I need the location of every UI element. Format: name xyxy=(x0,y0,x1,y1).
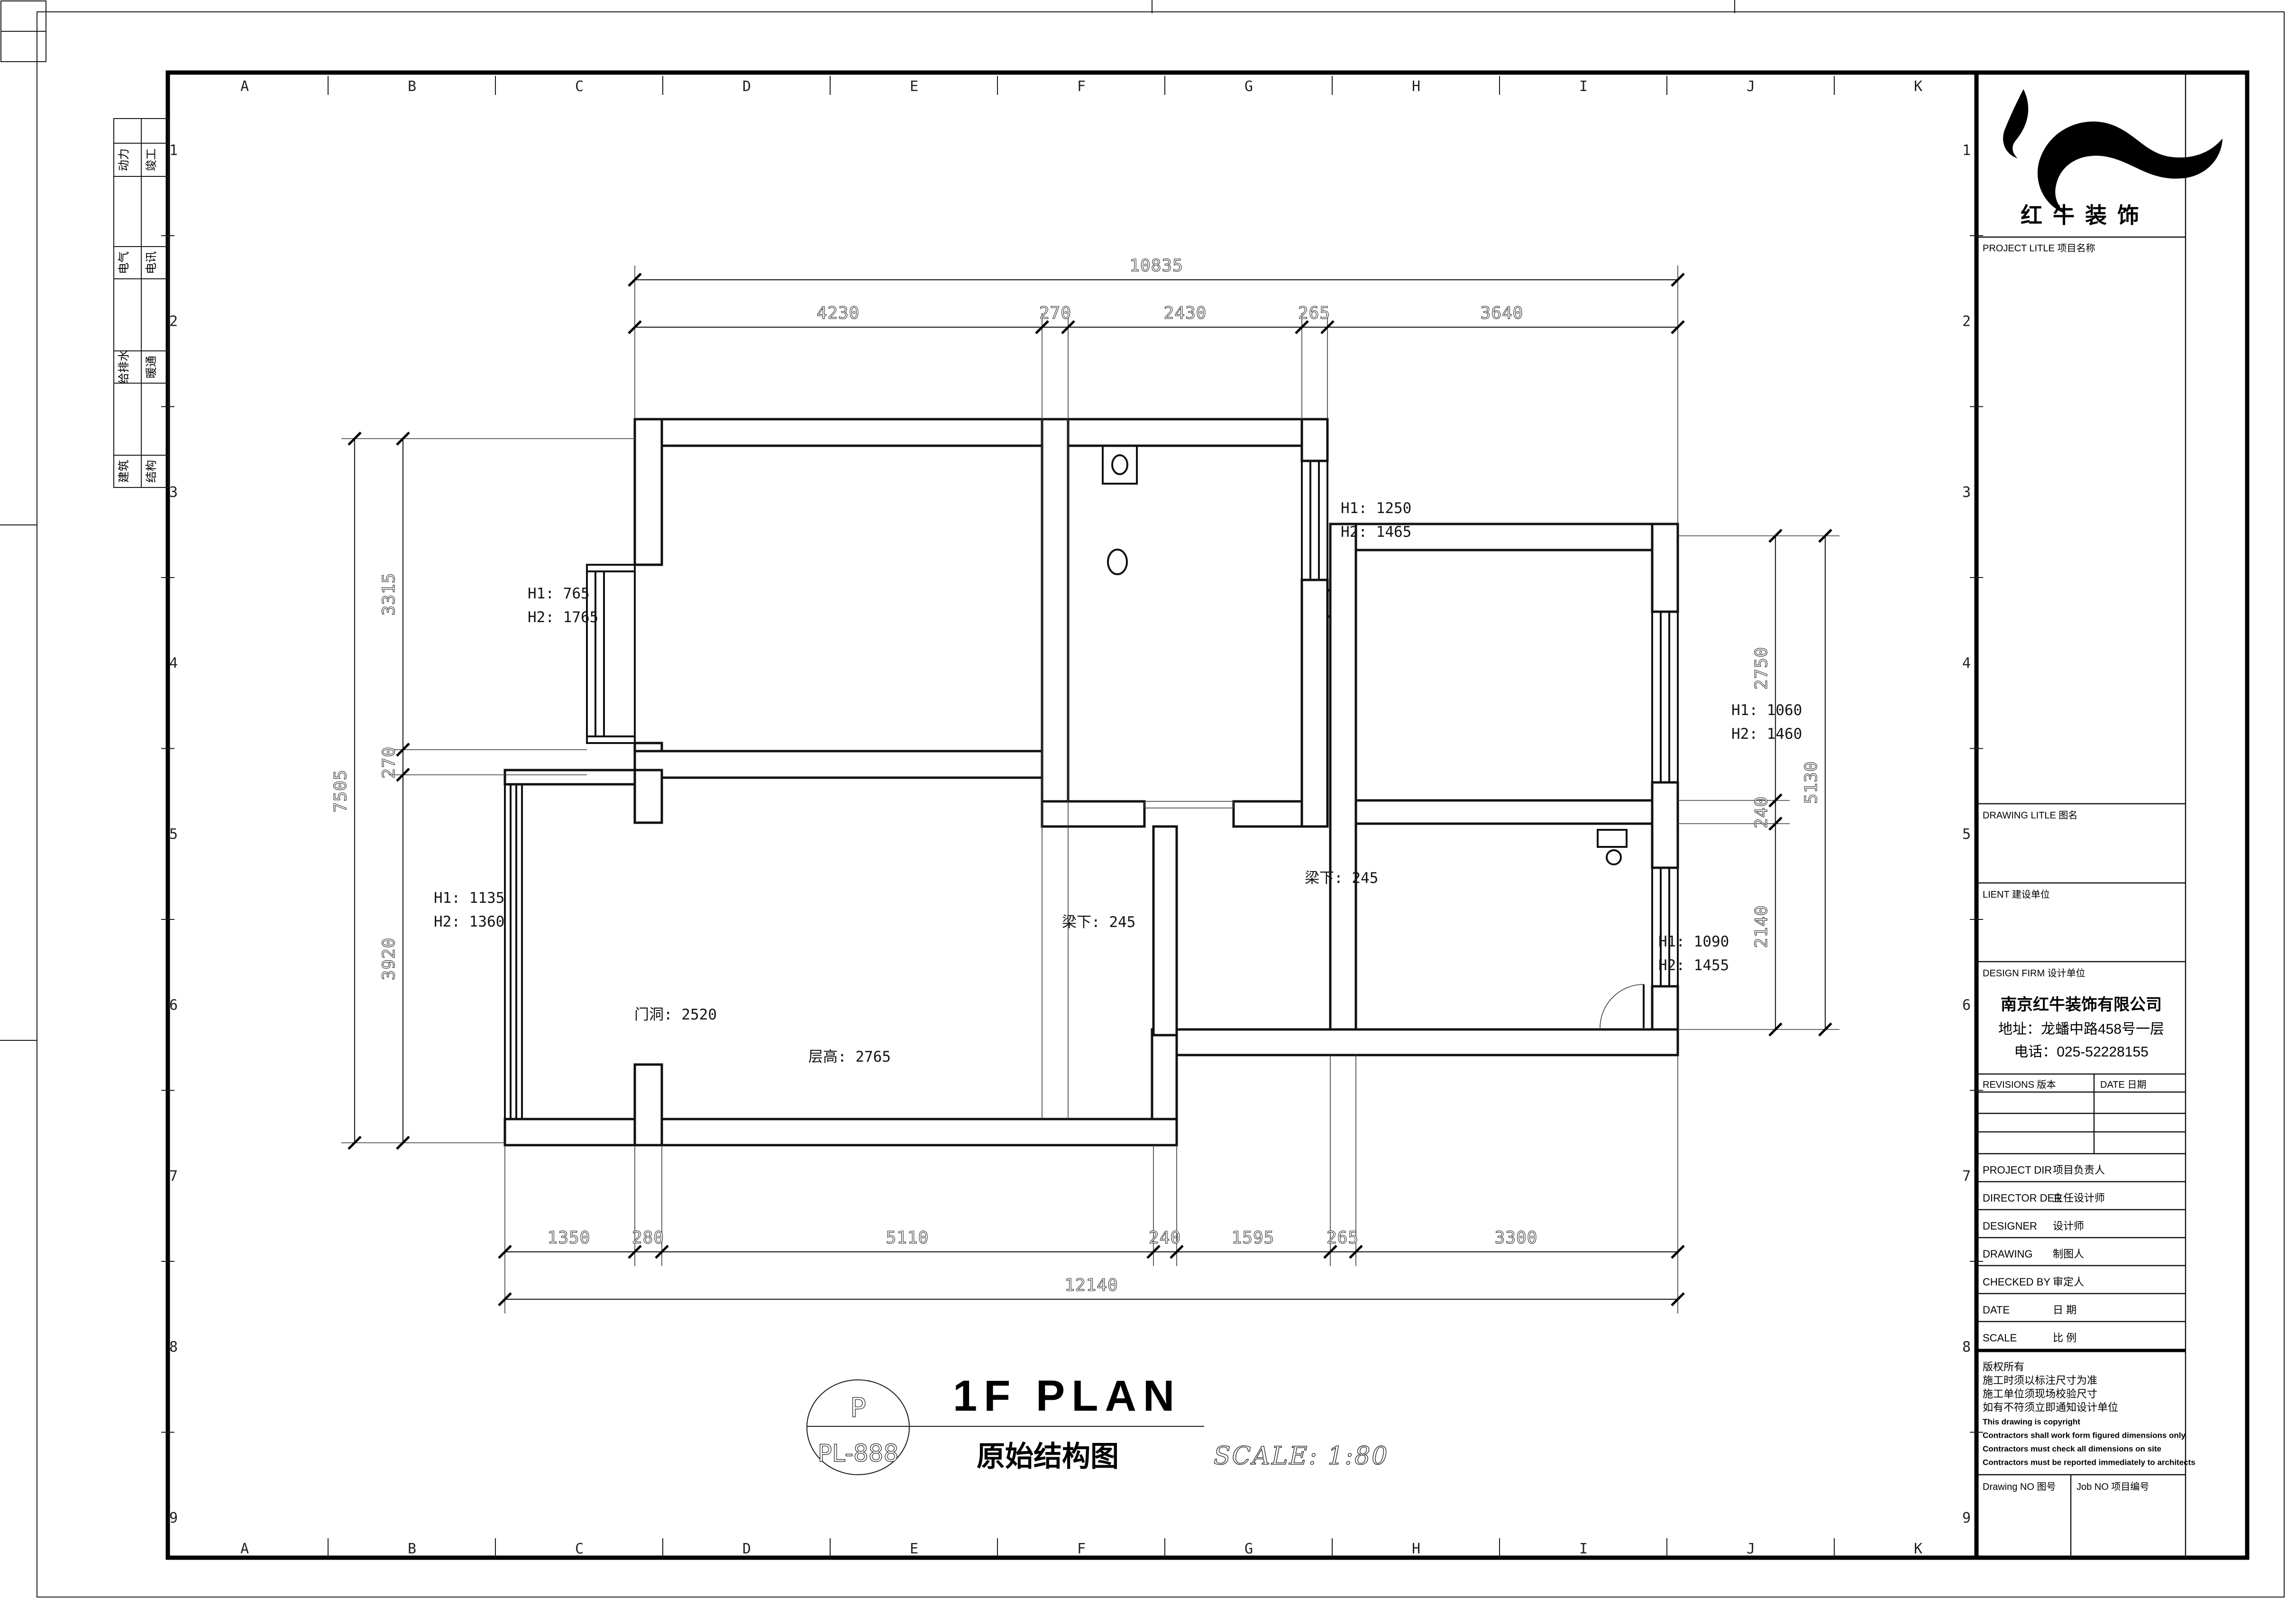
wall-balcony-top xyxy=(505,770,635,784)
grid-letter-bottom: A xyxy=(240,1541,249,1557)
date-col-label: DATE 日期 xyxy=(2100,1080,2146,1090)
tb-row-en: PROJECT DIR xyxy=(1983,1164,2052,1176)
tb-row-en: DESIGNER xyxy=(1983,1220,2037,1232)
tb-row-en: DIRECTOR DER xyxy=(1983,1192,2062,1204)
dim-value: 5110 xyxy=(886,1228,929,1248)
dim-value: 270 xyxy=(1039,303,1071,323)
sidebar-label-left: 给排水 xyxy=(118,350,130,384)
tb-row-cn: 主任设计师 xyxy=(2053,1192,2105,1204)
grid-letter-bottom: I xyxy=(1579,1541,1588,1557)
outer-border xyxy=(37,12,2284,1597)
wall-bed1-left-upper xyxy=(635,419,662,565)
tb-row-en: DATE xyxy=(1983,1304,2010,1316)
tb-row-cn: 比 例 xyxy=(2053,1332,2076,1344)
grid-number-left: 4 xyxy=(169,655,178,672)
dim-value: 280 xyxy=(632,1228,664,1248)
grid-letter-bottom: D xyxy=(742,1541,751,1557)
wall-bed1-bath-divider xyxy=(1042,419,1068,826)
plan-subtitle: 原始结构图 xyxy=(977,1441,1119,1472)
kitchen-fixture-box xyxy=(1598,830,1627,847)
dim-value: 5130 xyxy=(1802,761,1821,804)
tb-row-en: SCALE xyxy=(1983,1332,2017,1344)
dim-value: 3300 xyxy=(1495,1228,1538,1248)
grid-letter-top: G xyxy=(1244,78,1253,95)
dim-value: 3920 xyxy=(379,937,399,981)
plan-note: 层高: 2765 xyxy=(808,1048,891,1065)
copyright-line: Contractors must be reported immediately… xyxy=(1983,1458,2195,1467)
dim-value: 265 xyxy=(1326,1228,1359,1248)
bath-window xyxy=(1302,461,1327,580)
grid-number-right: 3 xyxy=(1962,484,1971,501)
dim-value: 10835 xyxy=(1129,256,1183,275)
kitchen-drain xyxy=(1607,850,1621,864)
wall-bed2-kitchen-divider xyxy=(1356,800,1652,824)
grid-number-left: 1 xyxy=(169,142,178,159)
grid-letter-top: B xyxy=(408,78,416,95)
grid-number-left: 6 xyxy=(169,997,178,1014)
sidebar-label-left: 电气 xyxy=(118,251,130,274)
grid-number-left: 3 xyxy=(169,484,178,501)
dim-value: 12140 xyxy=(1064,1276,1118,1295)
wall-bed1-bottom xyxy=(635,751,1068,778)
window-label-h2: H2: 1465 xyxy=(1341,523,1411,541)
sidebar-label-left: 建筑 xyxy=(118,460,130,483)
dim-value: 1350 xyxy=(548,1228,591,1248)
kitchen-door-swing xyxy=(1600,984,1644,1028)
bath-door-threshold xyxy=(1144,801,1234,808)
brand-name: 红牛装饰 xyxy=(2021,203,2150,228)
grid-letter-bottom: B xyxy=(408,1541,416,1557)
tb-row-cn: 项目负责人 xyxy=(2053,1164,2105,1176)
wall-rightblock-left xyxy=(1330,524,1356,1055)
discipline-sidebar: 动力竣工电气电讯给排水暖通建筑结构 xyxy=(114,119,168,487)
wall-rightblock-right-upper xyxy=(1652,524,1678,612)
tb-row-cn: 设计师 xyxy=(2053,1220,2084,1232)
grid-number-left: 8 xyxy=(169,1339,178,1356)
grid-letter-top: J xyxy=(1747,78,1755,95)
plan-scale: SCALE: 1:80 xyxy=(1214,1442,1389,1470)
grid-letter-bottom: K xyxy=(1914,1541,1922,1557)
balcony-window xyxy=(505,784,522,1119)
copyright-block: 版权所有施工时须以标注尺寸为准施工单位须现场校验尺寸如有不符须立即通知设计单位T… xyxy=(1983,1361,2195,1467)
wall-living-bottom xyxy=(505,1119,1177,1145)
grid-letter-top: F xyxy=(1077,78,1086,95)
wall-rightblock-right-mid xyxy=(1652,782,1678,868)
dim-value: 240 xyxy=(1149,1228,1181,1248)
dim-value: 2430 xyxy=(1164,303,1207,323)
fold-mark-box-1 xyxy=(1,1,46,31)
sidebar-label-right: 电讯 xyxy=(145,251,158,274)
window-label-h1: H1: 1250 xyxy=(1341,500,1411,517)
grid-number-right: 7 xyxy=(1962,1168,1971,1185)
grid-letter-bottom: H xyxy=(1412,1541,1420,1557)
main-frame xyxy=(168,73,2247,1558)
copyright-line: 施工时须以标注尺寸为准 xyxy=(1983,1375,2097,1387)
wall-living-right xyxy=(1153,826,1177,1035)
company-phone: 电话：025-52228155 xyxy=(2014,1044,2149,1060)
copyright-line: Contractors shall work form figured dime… xyxy=(1983,1431,2186,1440)
grid-letter-bottom: C xyxy=(575,1541,584,1557)
plan-title: 1F PLAN xyxy=(953,1372,1181,1420)
dim-value: 3640 xyxy=(1481,303,1524,323)
drawing-title-group: P PL-888 1F PLAN 原始结构图 SCALE: 1:80 xyxy=(807,1372,1389,1475)
title-bubble-code: PL-888 xyxy=(818,1440,899,1467)
bay-window xyxy=(587,565,635,743)
grid-number-left: 5 xyxy=(169,826,178,843)
copyright-line: 如有不符须立即通知设计单位 xyxy=(1983,1402,2118,1414)
grid-letter-top: C xyxy=(575,78,584,95)
wall-bath-right-lower xyxy=(1302,580,1327,826)
job-no-label: Job NO 项目编号 xyxy=(2076,1481,2149,1492)
dim-value: 3315 xyxy=(379,573,399,616)
plan-note: 梁下: 245 xyxy=(1062,914,1135,931)
walls xyxy=(505,419,1678,1145)
grid-letter-bottom: J xyxy=(1747,1541,1755,1557)
sidebar-label-right: 暖通 xyxy=(145,356,158,378)
copyright-line: Contractors must check all dimensions on… xyxy=(1983,1444,2161,1453)
grid-letter-top: D xyxy=(742,78,751,95)
sidebar-label-right: 竣工 xyxy=(145,148,158,171)
sidebar-label-left: 动力 xyxy=(118,148,130,171)
plan-note: 门洞: 2520 xyxy=(634,1006,717,1023)
grid-number-right: 9 xyxy=(1962,1510,1971,1526)
bed2-window xyxy=(1652,612,1678,782)
project-title-label: PROJECT LITLE 项目名称 xyxy=(1983,243,2095,254)
grid-letter-top: I xyxy=(1579,78,1588,95)
wall-bath-bottom-left xyxy=(1042,801,1144,826)
dim-value: 270 xyxy=(379,746,399,779)
wall-rightblock-bottom xyxy=(1152,1029,1678,1055)
dim-value: 240 xyxy=(1752,796,1771,828)
grid-number-right: 1 xyxy=(1962,142,1971,159)
tb-row-en: CHECKED BY xyxy=(1983,1276,2050,1288)
wall-bath-right-upper xyxy=(1302,419,1327,461)
drawing-title-label: DRAWING LITLE 图名 xyxy=(1983,810,2077,821)
copyright-line: 施工单位须现场校验尺寸 xyxy=(1983,1388,2097,1400)
fold-mark-box-2 xyxy=(1,31,46,62)
grid-letter-top: K xyxy=(1914,78,1922,95)
wall-living-left-upper xyxy=(635,770,662,823)
grid-letter-bottom: E xyxy=(910,1541,918,1557)
dim-value: 1595 xyxy=(1232,1228,1275,1248)
dim-value: 2750 xyxy=(1752,647,1771,690)
grid-number-right: 5 xyxy=(1962,826,1971,843)
tb-row-cn: 审定人 xyxy=(2053,1276,2084,1288)
tb-row-en: DRAWING xyxy=(1983,1248,2033,1260)
window-height-labels: H1: 765H2: 1765H1: 1250H2: 1465H1: 1060H… xyxy=(434,500,1802,974)
design-firm-label: DESIGN FIRM 设计单位 xyxy=(1983,968,2086,979)
drawing-no-label: Drawing NO 图号 xyxy=(1983,1482,2056,1492)
grid-number-right: 4 xyxy=(1962,655,1971,672)
drawing-sheet: 动力竣工电气电讯给排水暖通建筑结构 AABBCCDDEEFFGGHHIIJJKK… xyxy=(0,0,2296,1607)
tb-row-cn: 日 期 xyxy=(2053,1304,2076,1316)
window-label-h2: H2: 1455 xyxy=(1658,957,1729,974)
grid-letter-bottom: F xyxy=(1077,1541,1086,1557)
dim-value: 7505 xyxy=(331,770,350,813)
grid-number-right: 6 xyxy=(1962,997,1971,1014)
dim-value: 265 xyxy=(1298,303,1330,323)
logo-swoosh-small xyxy=(2003,89,2028,158)
brand-logo: 红牛装饰 xyxy=(2003,89,2223,228)
logo-swoosh-main xyxy=(2038,121,2223,214)
grid-letter-top: A xyxy=(240,78,249,95)
window-label-h2: H2: 1460 xyxy=(1731,725,1802,743)
grid-number-right: 2 xyxy=(1962,313,1971,330)
company-name: 南京红牛装饰有限公司 xyxy=(2001,996,2162,1014)
grid-number-left: 7 xyxy=(169,1168,178,1185)
company-address: 地址：龙蟠中路458号一层 xyxy=(1998,1021,2164,1037)
floor-plan: 1083542302702430265364013502805110240159… xyxy=(331,256,1839,1313)
copyright-line: This drawing is copyright xyxy=(1983,1417,2080,1426)
grid-number-left: 2 xyxy=(169,313,178,330)
window-label-h1: H1: 1135 xyxy=(434,890,504,907)
bath-basin-box xyxy=(1103,446,1137,484)
sidebar-label-right: 结构 xyxy=(145,460,158,483)
grid-number-right: 8 xyxy=(1962,1339,1971,1356)
grid-letter-bottom: G xyxy=(1244,1541,1253,1557)
grid-letter-top: E xyxy=(910,78,918,95)
client-label: LIENT 建设单位 xyxy=(1983,889,2050,900)
grid-number-left: 9 xyxy=(169,1510,178,1526)
title-bubble-top: P xyxy=(850,1393,866,1423)
grid-letter-top: H xyxy=(1412,78,1420,95)
revisions-label: REVISIONS 版本 xyxy=(1983,1079,2056,1090)
window-label-h2: H2: 1360 xyxy=(434,913,504,930)
dim-value: 2140 xyxy=(1752,905,1771,948)
wall-top xyxy=(635,419,1327,446)
window-label-h1: H1: 1060 xyxy=(1731,702,1802,719)
wall-living-left-lower xyxy=(635,1065,662,1145)
copyright-line: 版权所有 xyxy=(1983,1361,2024,1373)
plan-note: 梁下: 245 xyxy=(1305,870,1378,887)
window-label-h1: H1: 765 xyxy=(528,585,590,602)
dim-value: 4230 xyxy=(817,303,860,323)
bath-floor-drain xyxy=(1108,550,1127,574)
tb-row-cn: 制图人 xyxy=(2053,1248,2084,1260)
window-label-h2: H2: 1765 xyxy=(528,609,598,626)
window-label-h1: H1: 1090 xyxy=(1658,933,1729,950)
title-block-signature-rows: PROJECT DIR项目负责人DIRECTOR DER主任设计师DESIGNE… xyxy=(1976,1164,2186,1344)
bath-basin-bowl xyxy=(1112,455,1127,474)
